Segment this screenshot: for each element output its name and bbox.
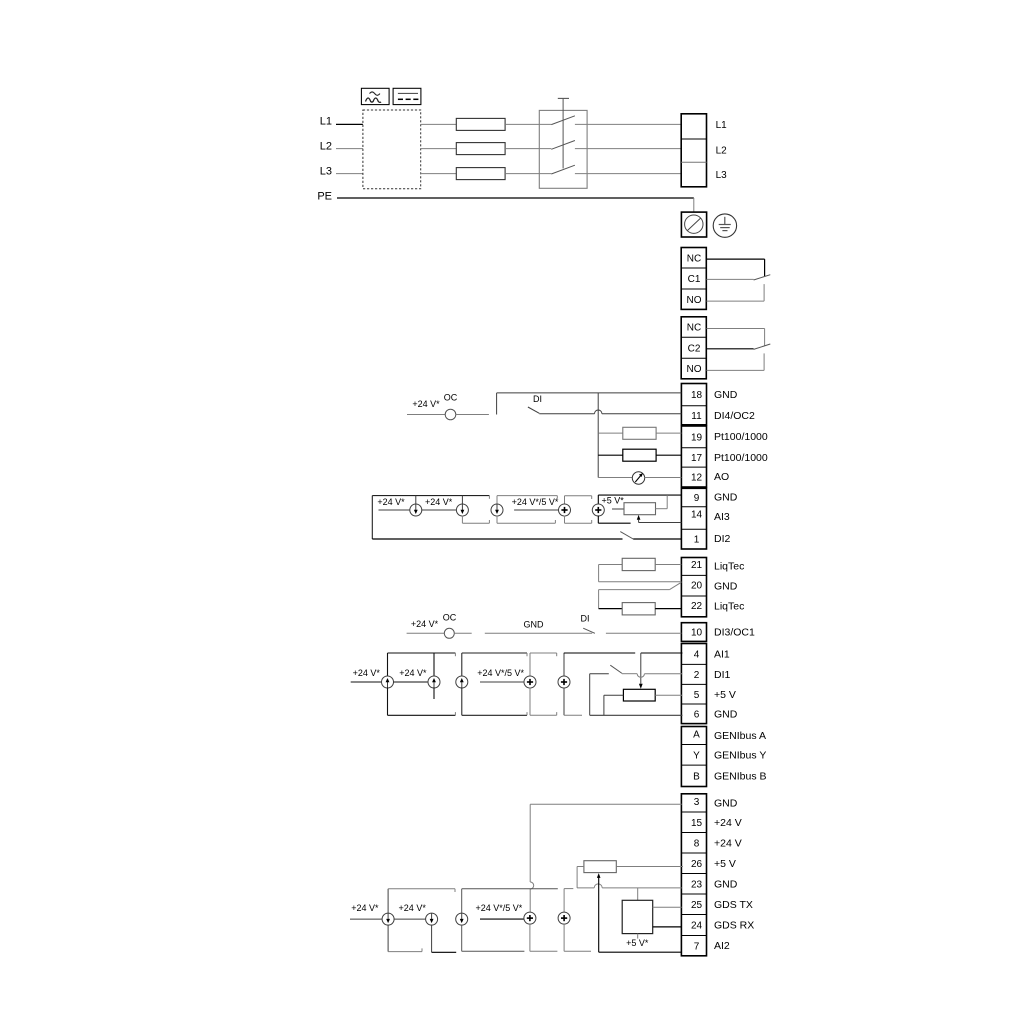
svg-text:DI1: DI1 — [714, 669, 731, 681]
svg-text:+24 V: +24 V — [714, 837, 742, 849]
svg-text:6: 6 — [694, 709, 700, 720]
svg-text:21: 21 — [691, 560, 703, 571]
svg-text:12: 12 — [691, 473, 703, 484]
svg-text:GENIbus B: GENIbus B — [714, 770, 767, 782]
svg-text:DI4/OC2: DI4/OC2 — [714, 410, 755, 422]
svg-text:8: 8 — [694, 838, 700, 849]
svg-text:NO: NO — [687, 364, 702, 375]
svg-text:PE: PE — [317, 191, 332, 203]
svg-text:NC: NC — [687, 323, 701, 334]
svg-text:Y: Y — [693, 750, 700, 761]
svg-text:22: 22 — [691, 601, 703, 612]
svg-text:L3: L3 — [716, 170, 728, 181]
svg-text:GND: GND — [714, 580, 738, 592]
svg-text:+24 V*/5 V*: +24 V*/5 V* — [512, 497, 559, 507]
svg-text:+24 V*: +24 V* — [412, 399, 440, 409]
svg-text:DI2: DI2 — [714, 533, 731, 545]
svg-text:GND: GND — [714, 389, 738, 401]
svg-text:+24 V*/5 V*: +24 V*/5 V* — [476, 903, 523, 913]
svg-text:5: 5 — [694, 690, 700, 701]
svg-text:L2: L2 — [320, 141, 332, 153]
svg-text:+24 V*: +24 V* — [377, 497, 405, 507]
svg-text:19: 19 — [691, 432, 703, 443]
svg-text:AI1: AI1 — [714, 649, 730, 661]
svg-text:B: B — [693, 771, 700, 782]
svg-text:26: 26 — [691, 859, 703, 870]
svg-text:A: A — [693, 729, 700, 740]
svg-text:C1: C1 — [688, 274, 701, 285]
svg-text:LiqTec: LiqTec — [714, 601, 744, 613]
svg-text:DI: DI — [533, 394, 542, 404]
svg-text:GND: GND — [524, 619, 545, 629]
svg-text:+5 V*: +5 V* — [601, 496, 624, 506]
svg-text:17: 17 — [691, 453, 703, 464]
svg-text:L2: L2 — [716, 146, 728, 157]
svg-text:+24 V*/5 V*: +24 V*/5 V* — [477, 668, 524, 678]
svg-text:+24 V*: +24 V* — [353, 668, 381, 678]
svg-text:NO: NO — [687, 295, 702, 306]
svg-text:GND: GND — [714, 492, 738, 504]
svg-text:L1: L1 — [716, 120, 728, 131]
svg-text:14: 14 — [691, 510, 703, 521]
svg-text:23: 23 — [691, 879, 703, 890]
svg-text:GND: GND — [714, 798, 738, 810]
svg-text:+24 V*: +24 V* — [351, 903, 379, 913]
svg-text:+5 V*: +5 V* — [626, 938, 649, 948]
svg-text:OC: OC — [443, 612, 457, 622]
svg-text:24: 24 — [691, 921, 703, 932]
svg-text:+24 V*: +24 V* — [425, 497, 453, 507]
svg-text:4: 4 — [694, 650, 700, 661]
svg-text:GDS TX: GDS TX — [714, 899, 753, 911]
svg-text:DI3/OC1: DI3/OC1 — [714, 627, 755, 639]
svg-text:25: 25 — [691, 900, 703, 911]
svg-text:GENIbus A: GENIbus A — [714, 730, 766, 742]
svg-text:3: 3 — [694, 797, 700, 808]
svg-text:GDS RX: GDS RX — [714, 920, 754, 932]
svg-text:1: 1 — [694, 535, 700, 546]
svg-text:AI3: AI3 — [714, 511, 730, 523]
svg-text:15: 15 — [691, 818, 703, 829]
svg-text:2: 2 — [694, 670, 700, 681]
svg-text:AO: AO — [714, 471, 729, 483]
svg-text:+24 V: +24 V — [714, 817, 742, 829]
svg-text:L3: L3 — [320, 166, 332, 178]
svg-text:OC: OC — [444, 393, 458, 403]
svg-text:11: 11 — [691, 411, 702, 422]
svg-text:GND: GND — [714, 878, 738, 890]
svg-text:9: 9 — [694, 493, 700, 504]
svg-text:LiqTec: LiqTec — [714, 561, 744, 573]
svg-text:10: 10 — [691, 628, 703, 639]
svg-text:C2: C2 — [688, 343, 701, 354]
svg-text:20: 20 — [691, 580, 703, 591]
svg-text:18: 18 — [691, 390, 703, 401]
svg-text:Pt100/1000: Pt100/1000 — [714, 431, 768, 443]
svg-text:AI2: AI2 — [714, 940, 730, 952]
svg-text:+24 V*: +24 V* — [399, 903, 427, 913]
svg-text:NC: NC — [687, 253, 701, 264]
svg-text:+24 V*: +24 V* — [399, 668, 427, 678]
svg-text:Pt100/1000: Pt100/1000 — [714, 452, 768, 464]
svg-text:GENIbus Y: GENIbus Y — [714, 749, 766, 761]
svg-text:7: 7 — [694, 941, 700, 952]
svg-text:L1: L1 — [320, 116, 332, 128]
svg-text:+24 V*: +24 V* — [411, 619, 439, 629]
svg-text:DI: DI — [581, 613, 590, 623]
svg-text:+5 V: +5 V — [714, 858, 736, 870]
svg-text:GND: GND — [714, 708, 738, 720]
svg-text:+5 V: +5 V — [714, 689, 736, 701]
